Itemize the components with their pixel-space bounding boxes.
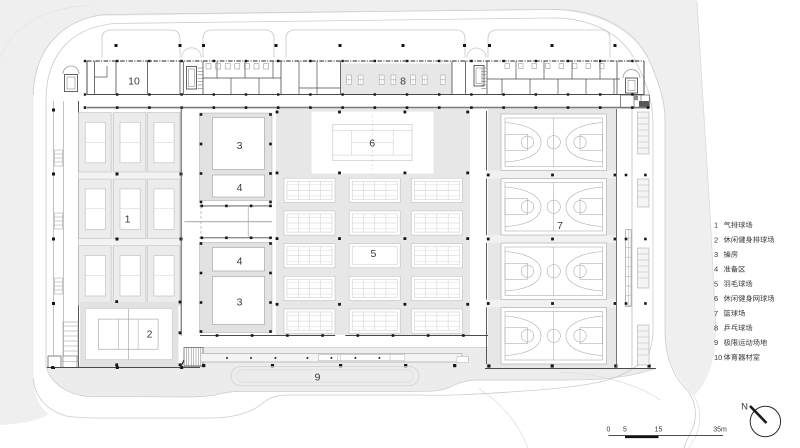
svg-text:8: 8 [400, 76, 406, 88]
svg-text:4: 4 [714, 265, 718, 274]
svg-text:3: 3 [237, 297, 243, 309]
svg-text:6: 6 [369, 137, 375, 149]
svg-text:9: 9 [315, 372, 321, 384]
svg-text:9: 9 [714, 338, 718, 347]
svg-text:2: 2 [147, 328, 153, 340]
svg-text:5: 5 [623, 427, 627, 434]
svg-text:7: 7 [557, 220, 563, 232]
svg-text:N: N [741, 402, 748, 413]
svg-text:10: 10 [128, 76, 140, 88]
svg-text:4: 4 [237, 182, 243, 194]
svg-text:7: 7 [714, 309, 718, 318]
svg-text:4: 4 [237, 256, 243, 268]
svg-text:35m: 35m [713, 427, 727, 434]
svg-text:8: 8 [714, 324, 718, 333]
svg-text:1: 1 [714, 221, 718, 230]
svg-text:6: 6 [714, 294, 718, 303]
svg-text:3: 3 [714, 250, 718, 259]
svg-text:10: 10 [714, 353, 722, 362]
svg-text:5: 5 [714, 279, 718, 288]
svg-text:15: 15 [655, 427, 663, 434]
svg-text:3: 3 [237, 140, 243, 152]
svg-text:2: 2 [714, 235, 718, 244]
svg-text:1: 1 [125, 214, 131, 226]
svg-text:5: 5 [370, 248, 376, 260]
svg-text:0: 0 [607, 427, 611, 434]
